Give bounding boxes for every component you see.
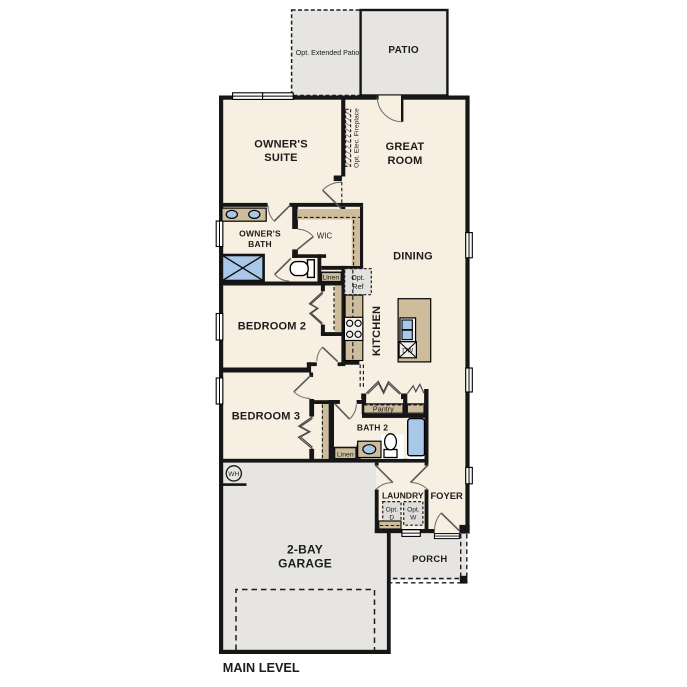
svg-text:KITCHEN: KITCHEN xyxy=(371,306,383,356)
svg-text:2-BAY: 2-BAY xyxy=(287,543,323,557)
svg-text:DW: DW xyxy=(402,348,414,355)
svg-text:Pantry: Pantry xyxy=(373,405,394,414)
svg-text:LAUNDRY: LAUNDRY xyxy=(382,490,424,500)
svg-text:Opt.: Opt. xyxy=(407,507,420,514)
svg-text:BATH: BATH xyxy=(248,239,272,249)
svg-text:Linen: Linen xyxy=(337,451,354,458)
svg-text:WIC: WIC xyxy=(317,232,333,241)
svg-text:OWNER'S: OWNER'S xyxy=(239,229,281,239)
svg-text:GARAGE: GARAGE xyxy=(278,557,332,571)
svg-text:MAIN LEVEL: MAIN LEVEL xyxy=(223,661,300,675)
svg-text:BEDROOM 3: BEDROOM 3 xyxy=(232,411,300,423)
svg-text:ROOM: ROOM xyxy=(387,155,422,167)
svg-text:BEDROOM 2: BEDROOM 2 xyxy=(238,321,306,333)
svg-text:WH: WH xyxy=(228,471,239,478)
svg-text:D: D xyxy=(389,515,394,522)
svg-text:Linen: Linen xyxy=(322,275,339,282)
svg-text:FOYER: FOYER xyxy=(430,490,463,501)
svg-text:GREAT: GREAT xyxy=(386,141,425,153)
svg-text:PATIO: PATIO xyxy=(388,45,419,56)
svg-text:PORCH: PORCH xyxy=(412,553,447,564)
svg-text:SUITE: SUITE xyxy=(264,152,297,164)
svg-text:W: W xyxy=(410,515,417,522)
svg-text:Opt. Extended Patio: Opt. Extended Patio xyxy=(296,49,360,57)
svg-text:Opt.: Opt. xyxy=(386,507,399,514)
svg-text:DINING: DINING xyxy=(393,251,433,263)
svg-text:Ref: Ref xyxy=(352,282,363,291)
svg-text:BATH 2: BATH 2 xyxy=(357,423,388,433)
svg-text:OWNER'S: OWNER'S xyxy=(254,139,308,151)
svg-text:Opt.: Opt. xyxy=(351,273,365,282)
svg-text:Opt. Elec. Fireplace: Opt. Elec. Fireplace xyxy=(354,108,361,168)
